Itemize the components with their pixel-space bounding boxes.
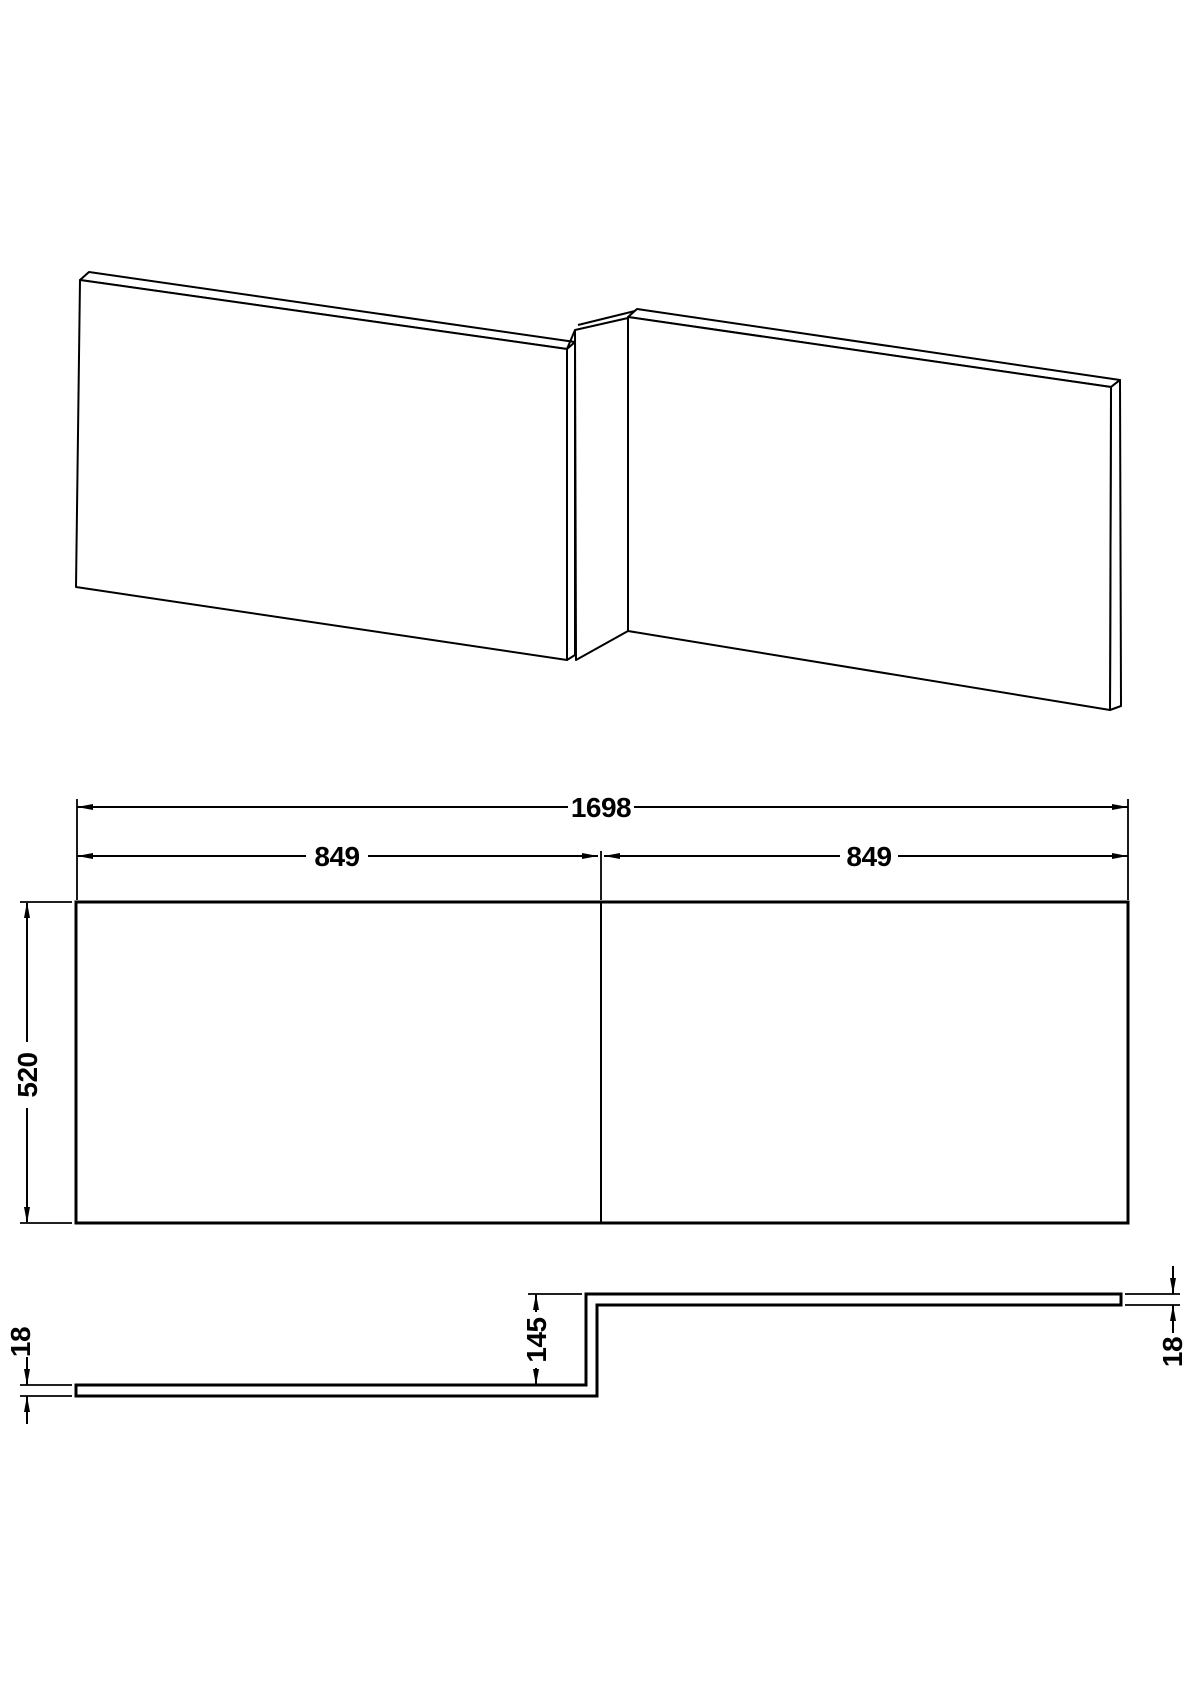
- right-thickness-label: 18: [1157, 1337, 1188, 1367]
- drawing-background: [0, 0, 1200, 1698]
- right-section-width-label: 849: [846, 841, 891, 872]
- total-width-label: 1698: [571, 792, 631, 823]
- technical-drawing-canvas: 1698 849 849 520: [0, 0, 1200, 1698]
- left-panel-end-edge: [567, 342, 575, 660]
- step-depth-label: 145: [521, 1317, 552, 1362]
- panel-height-label: 520: [12, 1052, 43, 1097]
- step-face: [575, 318, 628, 660]
- elevation-view: 1698 849 849 520: [12, 792, 1128, 1223]
- left-thickness-label: 18: [5, 1327, 36, 1357]
- left-section-width-label: 849: [314, 841, 359, 872]
- technical-drawing-page: 1698 849 849 520: [0, 0, 1200, 1698]
